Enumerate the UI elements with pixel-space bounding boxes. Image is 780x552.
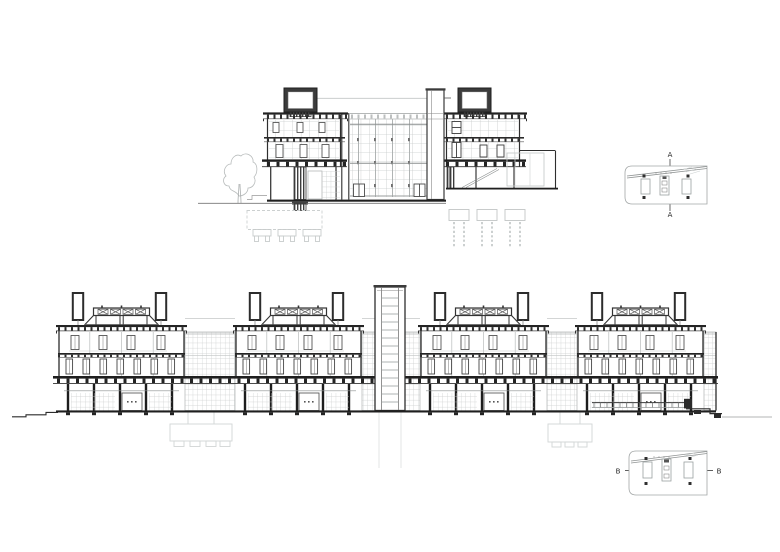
section-aa-drawing <box>198 88 558 247</box>
section-marker-a-bottom: A <box>668 211 673 219</box>
foundation-outlines <box>170 413 592 448</box>
section-marker-b-left: B <box>616 468 621 476</box>
building-wing-right <box>441 112 527 188</box>
rooftop-monitor-box-right <box>458 88 491 117</box>
section-bay-4 <box>575 293 706 415</box>
pile-foundations-left <box>247 203 322 241</box>
section-bay-1 <box>56 293 187 415</box>
left-approach-steps <box>12 412 58 416</box>
key-plan-b: B B <box>616 451 722 495</box>
section-bay-3 <box>418 293 549 415</box>
central-stair-tower <box>374 285 407 411</box>
ground-line-long-section <box>12 410 716 416</box>
pile-foundations-right <box>449 210 525 247</box>
ground-line-top-section <box>198 200 446 205</box>
section-marker-b-right: B <box>717 468 722 476</box>
section-marker-a-top: A <box>668 151 673 159</box>
key-plan-a: A A <box>625 151 707 219</box>
section-bb-drawing <box>12 285 772 468</box>
architectural-sections-canvas: A A <box>0 0 780 552</box>
section-bay-2 <box>233 293 364 415</box>
building-wing-left <box>247 112 348 199</box>
rooftop-monitor-box-left <box>284 88 317 117</box>
basement-guides <box>379 413 401 469</box>
drawing-sheet: A A <box>0 0 780 552</box>
